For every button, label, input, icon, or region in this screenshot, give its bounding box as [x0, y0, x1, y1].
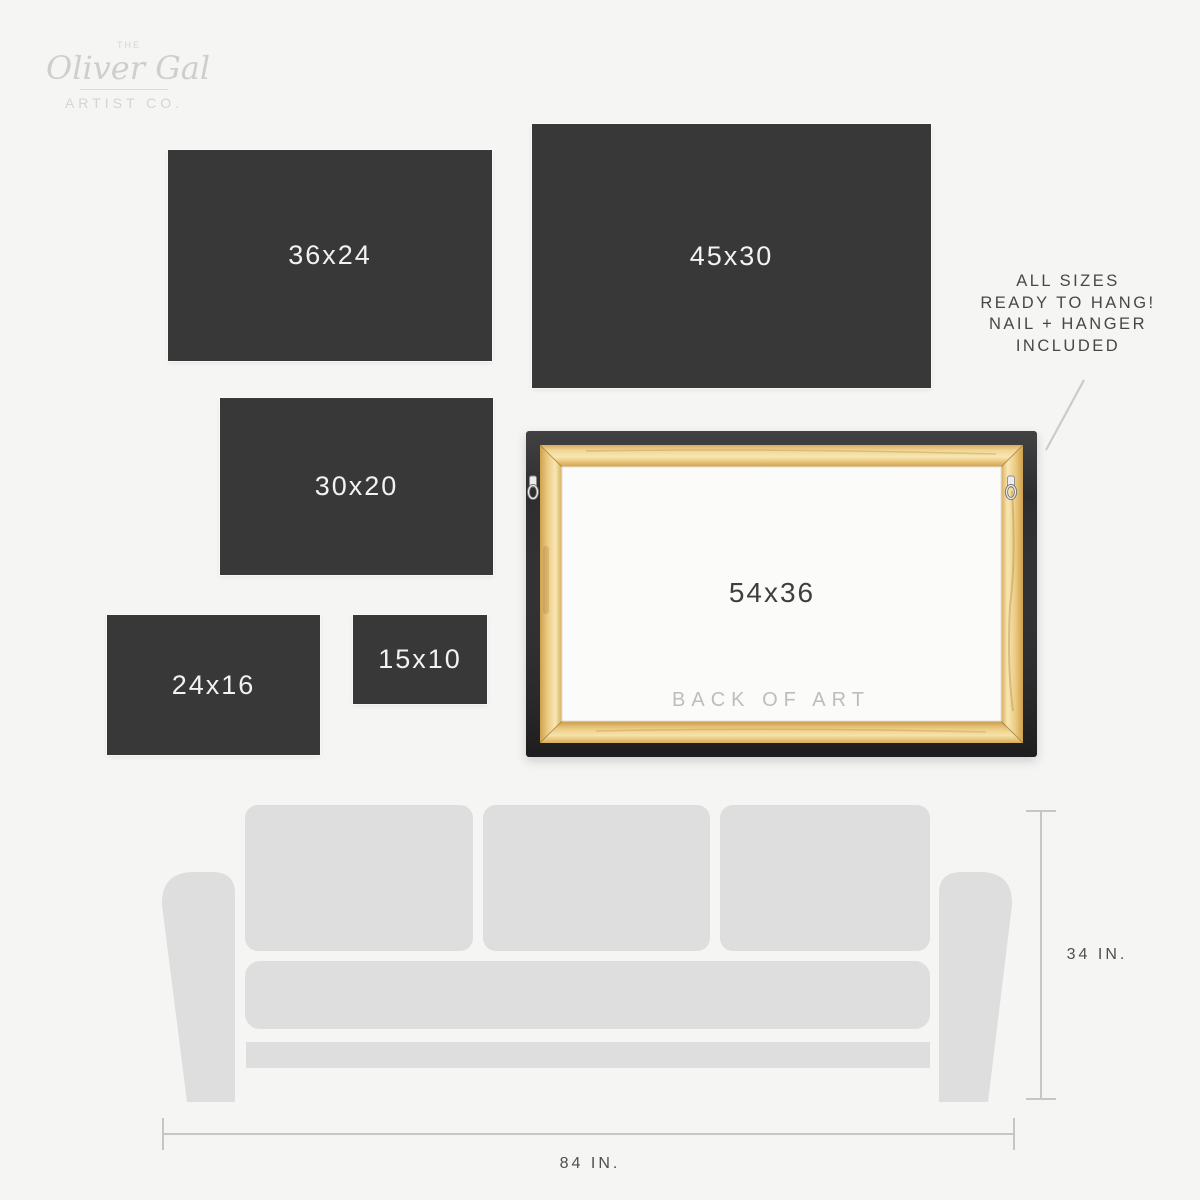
sofa-armrest-left	[162, 872, 235, 1102]
height-dimension-line	[1040, 811, 1042, 1100]
size-box-36x24: 36x24	[168, 150, 492, 361]
sofa-height-label: 34 IN.	[1057, 946, 1137, 964]
brand-logo: THE Oliver Gal ARTIST CO.	[46, 40, 202, 111]
sofa-illustration	[150, 795, 1030, 1115]
sofa-base-rail	[246, 1042, 930, 1068]
size-box-24x16: 24x16	[107, 615, 320, 755]
sofa-back-cushion-left	[245, 805, 473, 951]
sofa-width-label: 84 IN.	[535, 1155, 645, 1173]
sofa-back-cushion-middle	[483, 805, 710, 951]
sofa-seat-cushion	[245, 961, 930, 1029]
note-line-1: ALL SIZES	[958, 271, 1178, 293]
size-box-label-15x10: 15x10	[378, 644, 462, 675]
brand-suffix: ARTIST CO.	[46, 95, 202, 111]
size-box-45x30: 45x30	[532, 124, 931, 388]
note-line-2: READY TO HANG!	[958, 293, 1178, 315]
width-dimension-tick-left	[162, 1118, 164, 1150]
back-of-art-caption: BACK OF ART	[526, 689, 1016, 712]
size-box-label-45x30: 45x30	[690, 241, 774, 272]
sofa-back-cushion-right	[720, 805, 930, 951]
width-dimension-line	[163, 1133, 1015, 1135]
height-dimension-tick-top	[1026, 810, 1056, 812]
note-pointer-line	[1040, 374, 1090, 456]
size-box-label-36x24: 36x24	[288, 240, 372, 271]
brand-name: Oliver Gal	[46, 50, 202, 86]
size-box-label-24x16: 24x16	[172, 670, 256, 701]
sofa-armrest-right	[939, 872, 1012, 1102]
size-box-30x20: 30x20	[220, 398, 493, 575]
size-guide-page: THE Oliver Gal ARTIST CO. 36x24 45x30 30…	[0, 0, 1200, 1200]
note-line-3: NAIL + HANGER	[958, 314, 1178, 336]
note-line-4: INCLUDED	[958, 336, 1178, 358]
brand-divider	[80, 89, 168, 90]
width-dimension-tick-right	[1013, 1118, 1015, 1150]
size-box-15x10: 15x10	[353, 615, 487, 704]
height-dimension-tick-bottom	[1026, 1098, 1056, 1100]
back-of-art-frame: 54x36 BACK OF ART	[526, 431, 1037, 757]
frame-size-label: 54x36	[526, 577, 1018, 609]
size-box-label-30x20: 30x20	[315, 471, 399, 502]
ready-to-hang-note: ALL SIZES READY TO HANG! NAIL + HANGER I…	[958, 271, 1178, 357]
